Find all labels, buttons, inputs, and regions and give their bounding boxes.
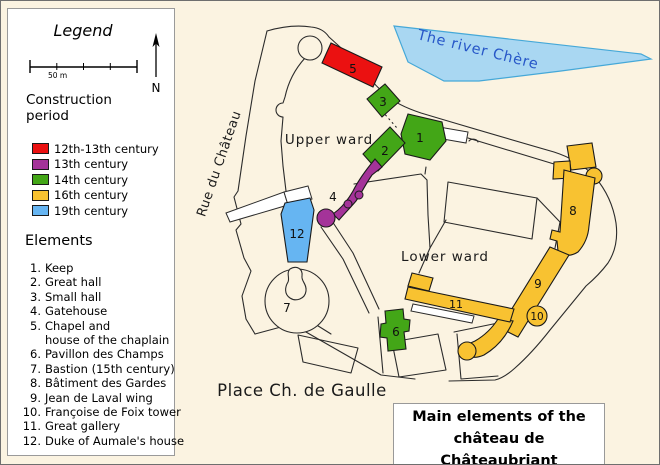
map-title-line1: Main elements of the (396, 407, 602, 429)
period-label: 16th century (54, 188, 128, 202)
building-number-10: 10 (530, 311, 543, 323)
wall-line (430, 220, 446, 248)
upper-ward-west-wall (276, 58, 305, 191)
legend-title: Legend (8, 21, 158, 40)
list-item-continued: house of the chaplain (45, 333, 174, 347)
list-item: 6.Pavillon des Champs (12, 347, 174, 361)
north-arrow: N (146, 33, 166, 95)
rampart-tower (458, 342, 476, 360)
passage-wall (332, 221, 379, 309)
building-number-2: 2 (381, 144, 389, 158)
scale-bar (27, 58, 147, 76)
list-item: 5.Chapel and (12, 319, 174, 333)
upper-ward-label: Upper ward (285, 132, 373, 148)
map-title-box: Main elements of the château de Châteaub… (393, 403, 605, 465)
period-row: 13th century (32, 157, 159, 173)
north-arrow-icon (149, 33, 163, 79)
wall-tick (425, 167, 426, 174)
wall-turret-bump (469, 139, 478, 142)
building-number-5: 5 (349, 62, 357, 76)
elements-heading: Elements (25, 233, 93, 249)
street-label: Rue du Château (194, 109, 244, 219)
period-row: 14th century (32, 172, 159, 188)
scale-label: 50 m (48, 71, 67, 80)
list-item: 3.Small hall (12, 290, 174, 304)
list-item: 1.Keep (12, 261, 174, 275)
building-number-4: 4 (329, 190, 337, 204)
period-swatch-blue (32, 205, 49, 216)
street-edge (234, 31, 267, 334)
period-row: 19th century (32, 203, 159, 219)
building-4-gatehouse-wall (333, 159, 382, 220)
period-label: 14th century (54, 173, 128, 187)
list-item: 4.Gatehouse (12, 304, 174, 318)
list-item: 10.Françoise de Foix tower (12, 405, 174, 419)
period-swatch-red (32, 143, 49, 154)
round-tower-outline (298, 36, 322, 60)
building-number-3: 3 (379, 95, 387, 109)
elements-list: 1.Keep 2.Great hall 3.Small hall 4.Gateh… (12, 261, 174, 448)
construction-period-heading: Construction period (26, 93, 126, 124)
lower-ward-plot (444, 182, 537, 239)
list-item: 8.Bâtiment des Gardes (12, 376, 174, 390)
plaza-label: Place Ch. de Gaulle (217, 381, 387, 400)
building-number-8: 8 (569, 204, 577, 218)
road-strip (226, 192, 288, 222)
building-8-head (567, 143, 596, 170)
list-item: 7.Bastion (15th century) (12, 362, 174, 376)
list-item: 2.Great hall (12, 275, 174, 289)
lower-ward-label: Lower ward (401, 249, 489, 265)
period-label: 13th century (54, 157, 128, 171)
legend-box: Legend 50 m N Construction period 12th-1… (7, 8, 175, 456)
map-canvas: The river Chère (0, 0, 660, 465)
building-number-1: 1 (416, 131, 424, 145)
period-label: 12th-13th century (54, 142, 159, 156)
period-row: 16th century (32, 188, 159, 204)
period-label: 19th century (54, 204, 128, 218)
building-4-gatehouse-tower (317, 209, 335, 227)
building-number-6: 6 (392, 325, 400, 339)
construction-periods: 12th-13th century 13th century 14th cent… (32, 141, 159, 219)
gatehouse-scallop (344, 200, 352, 208)
list-item: 11.Great gallery (12, 419, 174, 433)
period-row: 12th-13th century (32, 141, 159, 157)
building-number-9: 9 (534, 277, 542, 291)
building-number-7: 7 (283, 301, 291, 315)
list-item: 12.Duke of Aumale's house (12, 434, 174, 448)
plot-outline (298, 335, 358, 373)
building-number-12: 12 (289, 227, 304, 241)
period-swatch-orange (32, 190, 49, 201)
period-swatch-purple (32, 159, 49, 170)
building-number-11: 11 (449, 298, 463, 311)
north-label: N (146, 81, 166, 95)
map-title-line2: château de Châteaubriant (396, 429, 602, 465)
lower-ward-north-wall (468, 138, 554, 164)
period-swatch-green (32, 174, 49, 185)
list-item: 9.Jean de Laval wing (12, 391, 174, 405)
gatehouse-scallop (355, 191, 363, 199)
